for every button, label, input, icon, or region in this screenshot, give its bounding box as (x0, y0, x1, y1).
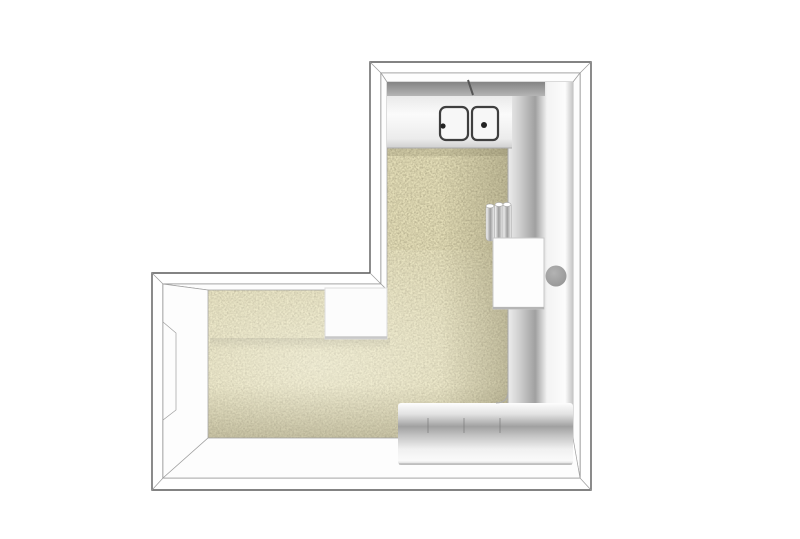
standpipe-3[interactable] (503, 203, 512, 241)
door-opening (163, 322, 176, 420)
floorplan-canvas[interactable] (0, 0, 800, 539)
sink-right-drain-dot (481, 122, 487, 128)
standpipe-cap (495, 203, 503, 207)
table-shadow (210, 338, 390, 350)
side-table-top[interactable] (325, 288, 387, 339)
sink-left-basin[interactable] (440, 107, 468, 140)
upperleft-wall-face (381, 73, 387, 290)
standpipe-1[interactable] (486, 205, 495, 241)
backsplash-strip (387, 82, 545, 96)
standpipes[interactable] (486, 203, 512, 242)
bottom-counter-body[interactable] (398, 403, 573, 465)
floor-shadow-top-counter (387, 148, 512, 156)
appliance-box[interactable] (493, 238, 544, 309)
sink-left-drain-dot (440, 123, 445, 128)
top-wall-face (381, 73, 580, 82)
appliance-box-body[interactable] (493, 238, 544, 309)
right-wall-face (573, 73, 580, 478)
standpipe-cap (503, 203, 511, 207)
counter-round-fixture[interactable] (546, 266, 567, 287)
standpipe-cap (486, 204, 494, 208)
standpipe-2[interactable] (495, 203, 504, 241)
